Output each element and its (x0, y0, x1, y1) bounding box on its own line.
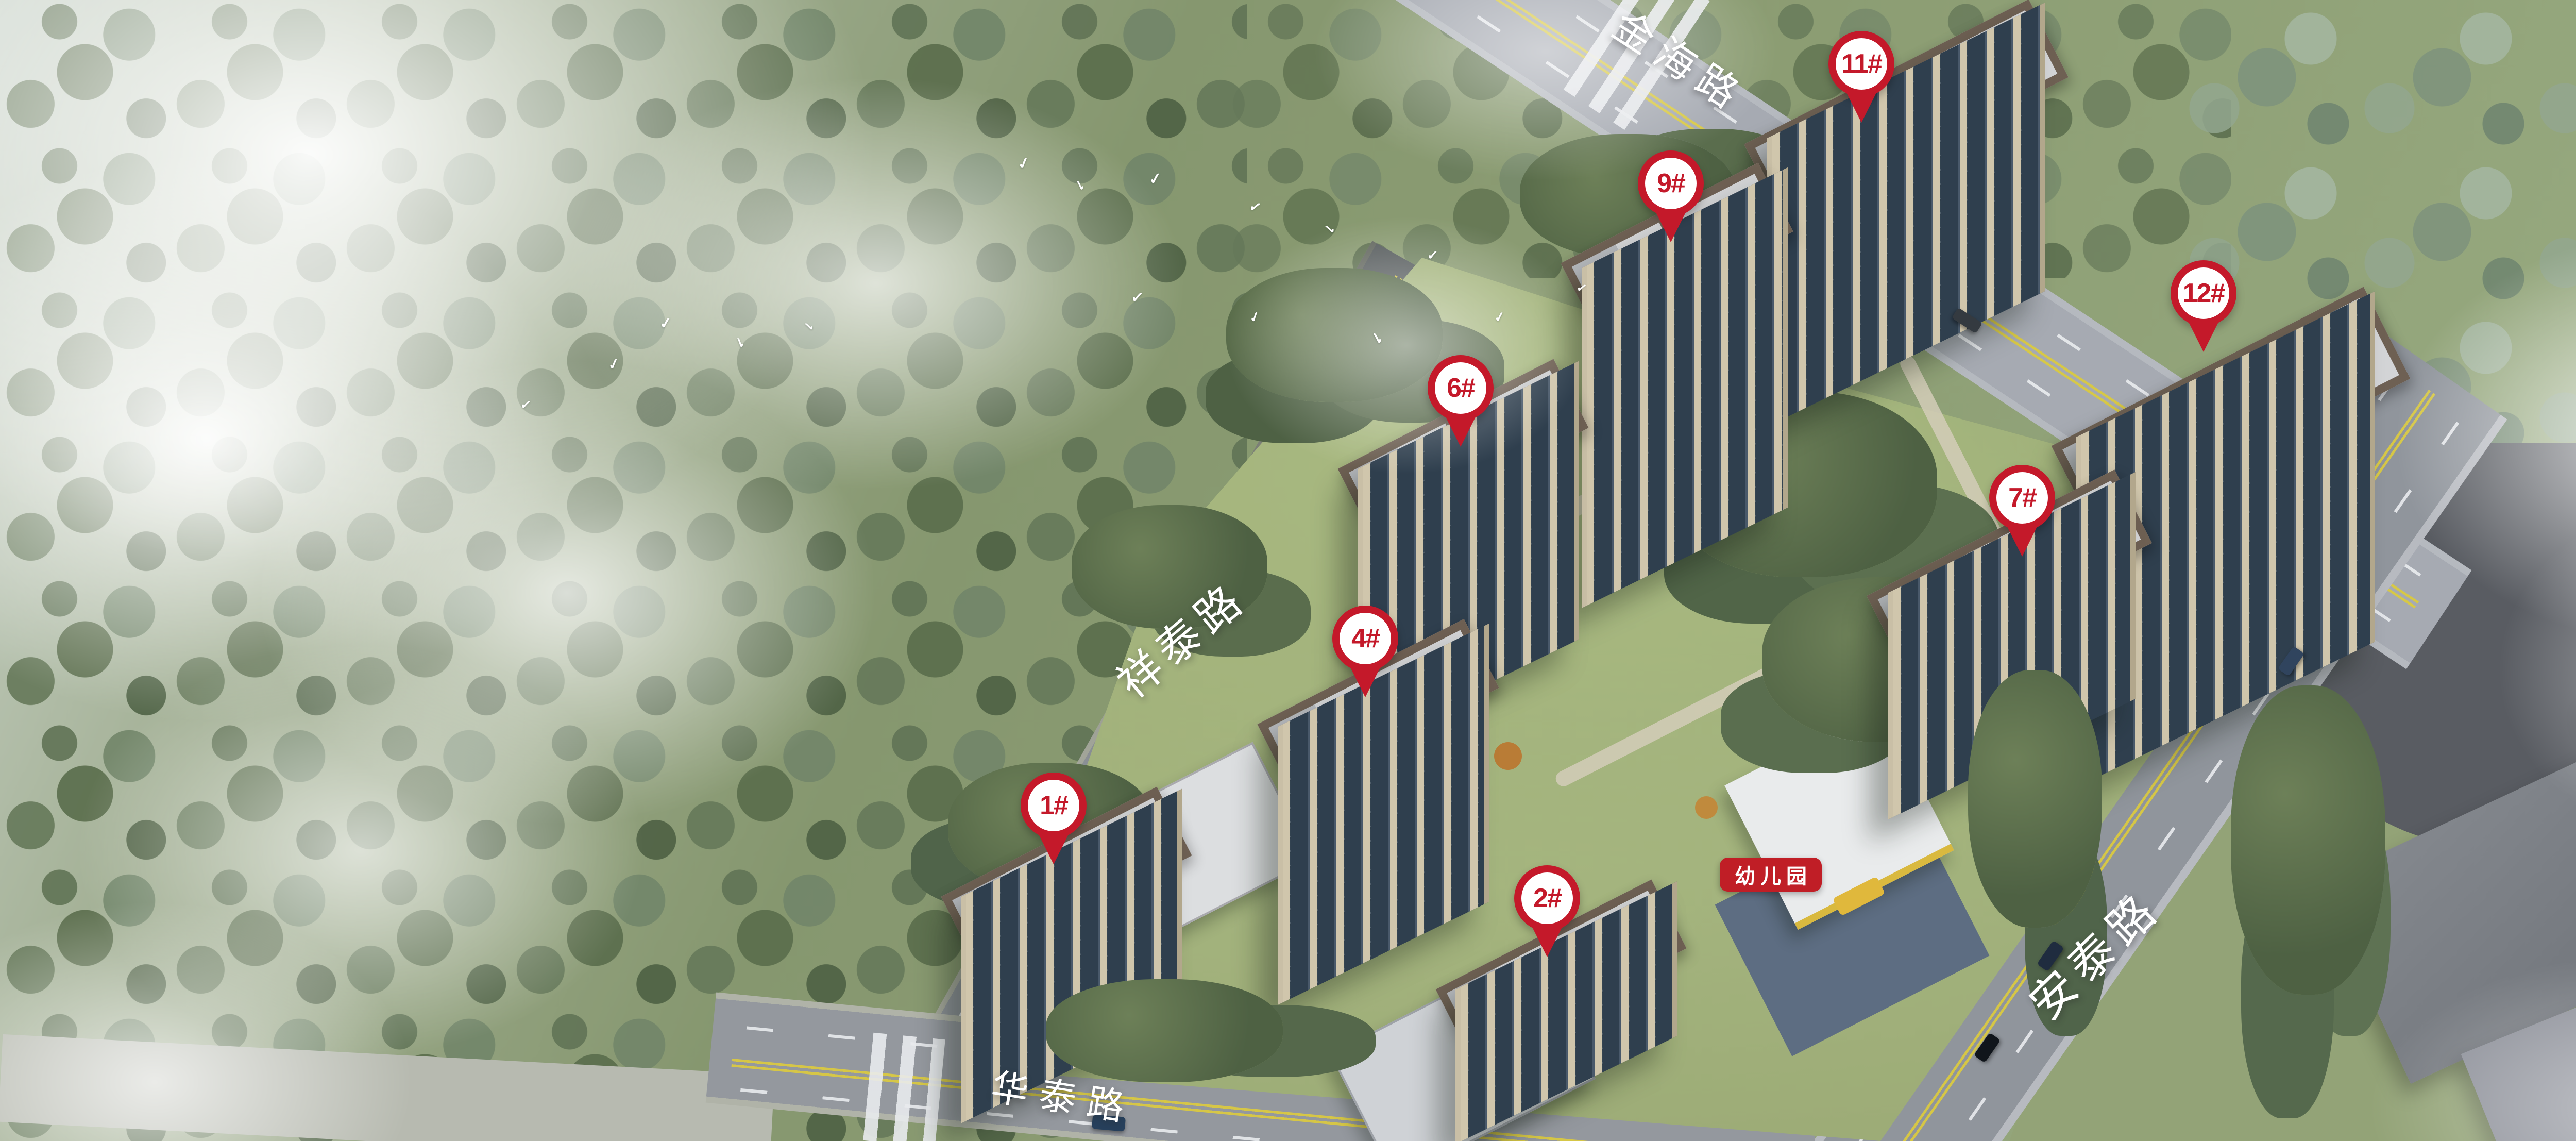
pin-tail-icon (1445, 416, 1476, 447)
autumn-tree (1695, 796, 1718, 819)
pin-tail-icon (1350, 666, 1381, 697)
tree-grove (1968, 670, 2102, 928)
building-pin-7: 7# (1989, 465, 2055, 557)
pin-tail-icon (1655, 211, 1686, 242)
pin-tail-icon (2007, 526, 2038, 557)
pin-circle: 1# (1021, 773, 1087, 838)
pin-label: 2# (1533, 885, 1561, 912)
pin-label: 7# (2008, 484, 2036, 511)
kindergarten-badge-label: 幼儿园 (1735, 860, 1812, 890)
pin-circle: 11# (1828, 31, 1894, 97)
bird-icon: ✓ (519, 396, 533, 414)
building-pin-4: 4# (1332, 606, 1398, 697)
bird-icon: ✓ (1148, 169, 1163, 189)
building-pin-9: 9# (1638, 150, 1704, 242)
pin-circle: 2# (1514, 865, 1580, 931)
building-pin-12: 12# (2171, 260, 2236, 352)
pin-circle: 7# (1989, 465, 2055, 531)
bird-icon: ✓ (658, 314, 673, 333)
pin-label: 12# (2183, 280, 2225, 307)
pin-circle: 6# (1428, 355, 1494, 421)
autumn-tree (1494, 742, 1522, 770)
pin-label: 9# (1657, 170, 1685, 197)
pin-tail-icon (1846, 92, 1877, 123)
aerial-site-plan: ✓ ✓ ✓ ✓ ✓ ✓ ✓ ✓ ✓ ✓ ✓ ✓ ✓ ✓ ✓ ✓ 金海路 祥泰路 … (0, 0, 2576, 1141)
pin-circle: 9# (1638, 150, 1704, 216)
crosswalk (863, 1033, 945, 1141)
tree-grove (1046, 979, 1283, 1082)
pin-label: 4# (1351, 625, 1379, 652)
pin-label: 6# (1447, 375, 1475, 401)
tree-grove (2231, 685, 2385, 995)
building-pin-11: 11# (1828, 31, 1894, 123)
pin-tail-icon (1532, 926, 1563, 957)
bird-icon: ✓ (1427, 247, 1439, 263)
pin-circle: 4# (1332, 606, 1398, 672)
pin-label: 11# (1841, 51, 1882, 77)
building-pin-6: 6# (1428, 355, 1494, 447)
pin-circle: 12# (2171, 260, 2236, 326)
bird-icon: ✓ (1369, 329, 1385, 348)
pin-label: 1# (1040, 792, 1067, 819)
pin-tail-icon (1038, 833, 1069, 864)
tree-grove (1226, 268, 1443, 402)
kindergarten-badge: 幼儿园 (1720, 858, 1822, 892)
building-pin-2: 2# (1514, 865, 1580, 957)
building-pin-1: 1# (1021, 773, 1087, 864)
pin-tail-icon (2188, 321, 2219, 352)
bird-icon: ✓ (1130, 288, 1145, 307)
